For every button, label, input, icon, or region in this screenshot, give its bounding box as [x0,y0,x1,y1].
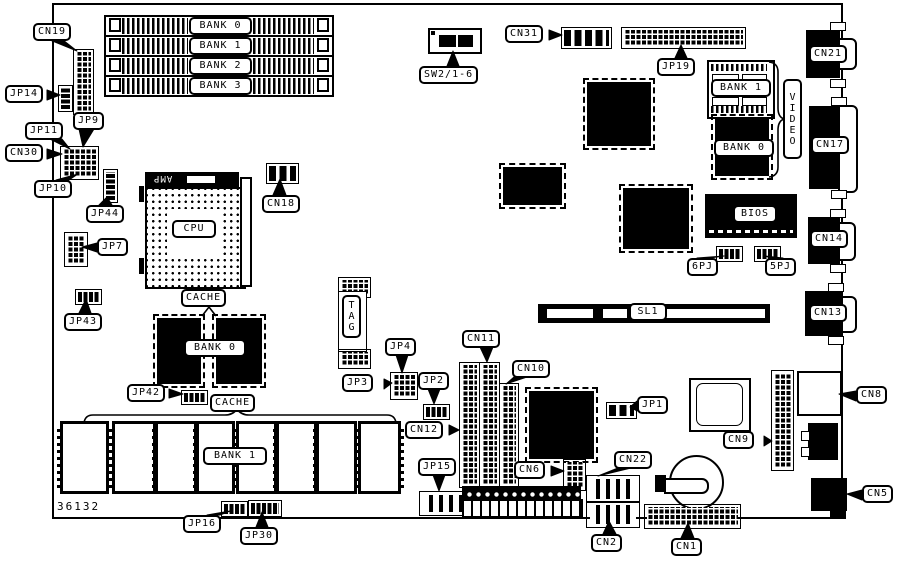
cpu-socket [145,187,246,289]
label-bios: BIOS [733,205,777,223]
label-pj6: 6PJ [687,258,718,276]
label-sw2: SW2/1-6 [419,66,478,84]
cpu-socket-side-bar [240,177,252,287]
cn19-connector [73,49,94,115]
socket-clip [109,18,121,32]
label-cache-bottom: CACHE [210,394,255,412]
plcc-socket-inner [696,383,743,426]
socket-pins [248,38,314,54]
io-controller-chip [529,391,594,459]
jp30-jumper [248,500,282,517]
label-jp15: JP15 [418,458,456,476]
label-jp1: JP1 [637,396,668,414]
label-bank2-simm: BANK 2 [189,57,252,75]
mount-tab [830,22,846,31]
mount-tab [831,190,847,199]
label-cn5: CN5 [862,485,893,503]
mount-tab [831,97,847,106]
amp-window [187,176,215,183]
cn18-jumper [266,163,299,184]
label-jp10: JP10 [34,180,72,198]
socket-pins [122,18,188,34]
cn11-connector [479,362,500,488]
label-sl1: SL1 [629,303,667,321]
pin-strip-square [462,499,583,518]
socket-clip [317,38,329,52]
cn5-connector [811,478,847,511]
slot-key [665,309,765,318]
jp2-jumper [423,404,450,420]
switch-corner-mark [431,31,435,35]
mount-tab [828,283,844,292]
slot-key [603,309,627,318]
mount-tab [801,447,810,457]
motherboard-diagram: AMP [0,0,902,561]
socket-pins [248,18,314,34]
mount-tab [801,431,810,441]
tag-chip-pins-bottom [338,349,371,369]
socket-slot [742,97,767,106]
plcc-socket [689,378,751,432]
label-bank3-simm: BANK 3 [189,77,252,95]
cpu-socket-lever-bar: AMP [145,172,239,187]
jp43-jumper [75,289,102,305]
label-jp11: JP11 [25,122,63,140]
label-bank1-simm: BANK 1 [189,37,252,55]
label-cn14: CN14 [810,230,848,248]
label-cn31: CN31 [505,25,543,43]
label-cn30: CN30 [5,144,43,162]
6pj-jumper [716,246,743,262]
label-cn1: CN1 [671,538,702,556]
bios-chip-socket-line [709,230,793,233]
label-cache-top: CACHE [181,289,226,307]
jp7-jumper [64,232,88,267]
socket-clip [317,18,329,32]
label-jp3: JP3 [342,374,373,392]
cpu-socket-tab [139,258,144,274]
chipset-chip-3 [623,188,689,249]
mount-tab [830,264,846,273]
jp44-jumper [103,169,118,203]
label-cn2: CN2 [591,534,622,552]
cn12-connector [459,362,480,488]
jp16-jumper [221,501,248,517]
label-bank0-cache: BANK 0 [184,339,246,357]
jp1-jumper [606,402,637,419]
cache-dip-chip [112,421,156,494]
socket-pins [122,78,188,94]
chipset-chip-1 [587,82,651,146]
label-bank1-cache: BANK 1 [203,447,267,465]
battery-clip [664,478,709,494]
socket-clip [109,58,121,72]
cache-dip-chip [155,421,197,494]
label-jp19: JP19 [657,58,695,76]
amp-brand-text: AMP [153,173,172,183]
cn31-connector [561,27,612,49]
socket-pins [248,58,314,74]
slot-key [547,309,593,318]
label-cn17: CN17 [811,136,849,154]
jp15-connector [419,491,466,516]
label-cn6: CN6 [514,461,545,479]
label-jp9: JP9 [73,112,104,130]
label-tag: TAG [342,295,361,338]
jp42-jumper [181,390,208,405]
sw2-dip-switch [428,28,482,54]
label-pj5: 5PJ [765,258,796,276]
label-cn8: CN8 [856,386,887,404]
label-jp43: JP43 [64,313,102,331]
label-cpu: CPU [172,220,216,238]
label-cn12: CN12 [405,421,443,439]
label-cn13: CN13 [809,304,847,322]
board-number: 36132 [57,500,100,513]
cn5-connector-stub [830,511,846,519]
jp3-jp4-block [390,372,418,400]
label-bank0-video: BANK 0 [714,139,774,157]
chipset-chip-2 [503,167,562,205]
label-cn18: CN18 [262,195,300,213]
label-cn22: CN22 [614,451,652,469]
label-jp42: JP42 [127,384,165,402]
cn1-connector [644,504,741,529]
socket-clip [317,58,329,72]
cn30-jp9-jp10-jp11-block [60,146,99,180]
mount-tab [830,209,846,218]
cpu-socket-tab [139,186,144,202]
switch-block [439,35,456,47]
socket-pins [711,106,767,113]
cn9-connector [771,370,794,471]
socket-pins [122,38,188,54]
label-jp14: JP14 [5,85,43,103]
label-bank1-video: BANK 1 [711,79,771,97]
cache-dip-chip [358,421,401,494]
socket-pins [122,58,188,74]
jp14-jumper [58,85,73,112]
label-cn9: CN9 [723,431,754,449]
cn2-connector [586,501,640,528]
label-video: VIDEO [783,79,802,159]
cache-dip-chip [316,421,357,494]
socket-clip [109,38,121,52]
label-jp44: JP44 [86,205,124,223]
label-cn21: CN21 [809,45,847,63]
cache-dip-chip [60,421,109,494]
edge-connector [808,423,838,460]
socket-pins [248,78,314,94]
mount-tab [830,79,846,88]
jp19-connector [621,27,746,49]
cn8-connector [797,371,842,416]
label-jp16: JP16 [183,515,221,533]
cache-dip-chip [276,421,317,494]
label-jp4: JP4 [385,338,416,356]
label-jp2: JP2 [418,372,449,390]
label-bank0-simm: BANK 0 [189,17,252,35]
cn22-connector [586,475,640,503]
socket-clip [109,78,121,92]
label-cn19: CN19 [33,23,71,41]
switch-block [458,35,473,47]
label-cn11: CN11 [462,330,500,348]
label-cn10: CN10 [512,360,550,378]
socket-pins [711,64,767,71]
label-jp30: JP30 [240,527,278,545]
label-jp7: JP7 [97,238,128,256]
mount-tab [828,336,844,345]
socket-clip [317,78,329,92]
socket-slot [712,97,739,106]
